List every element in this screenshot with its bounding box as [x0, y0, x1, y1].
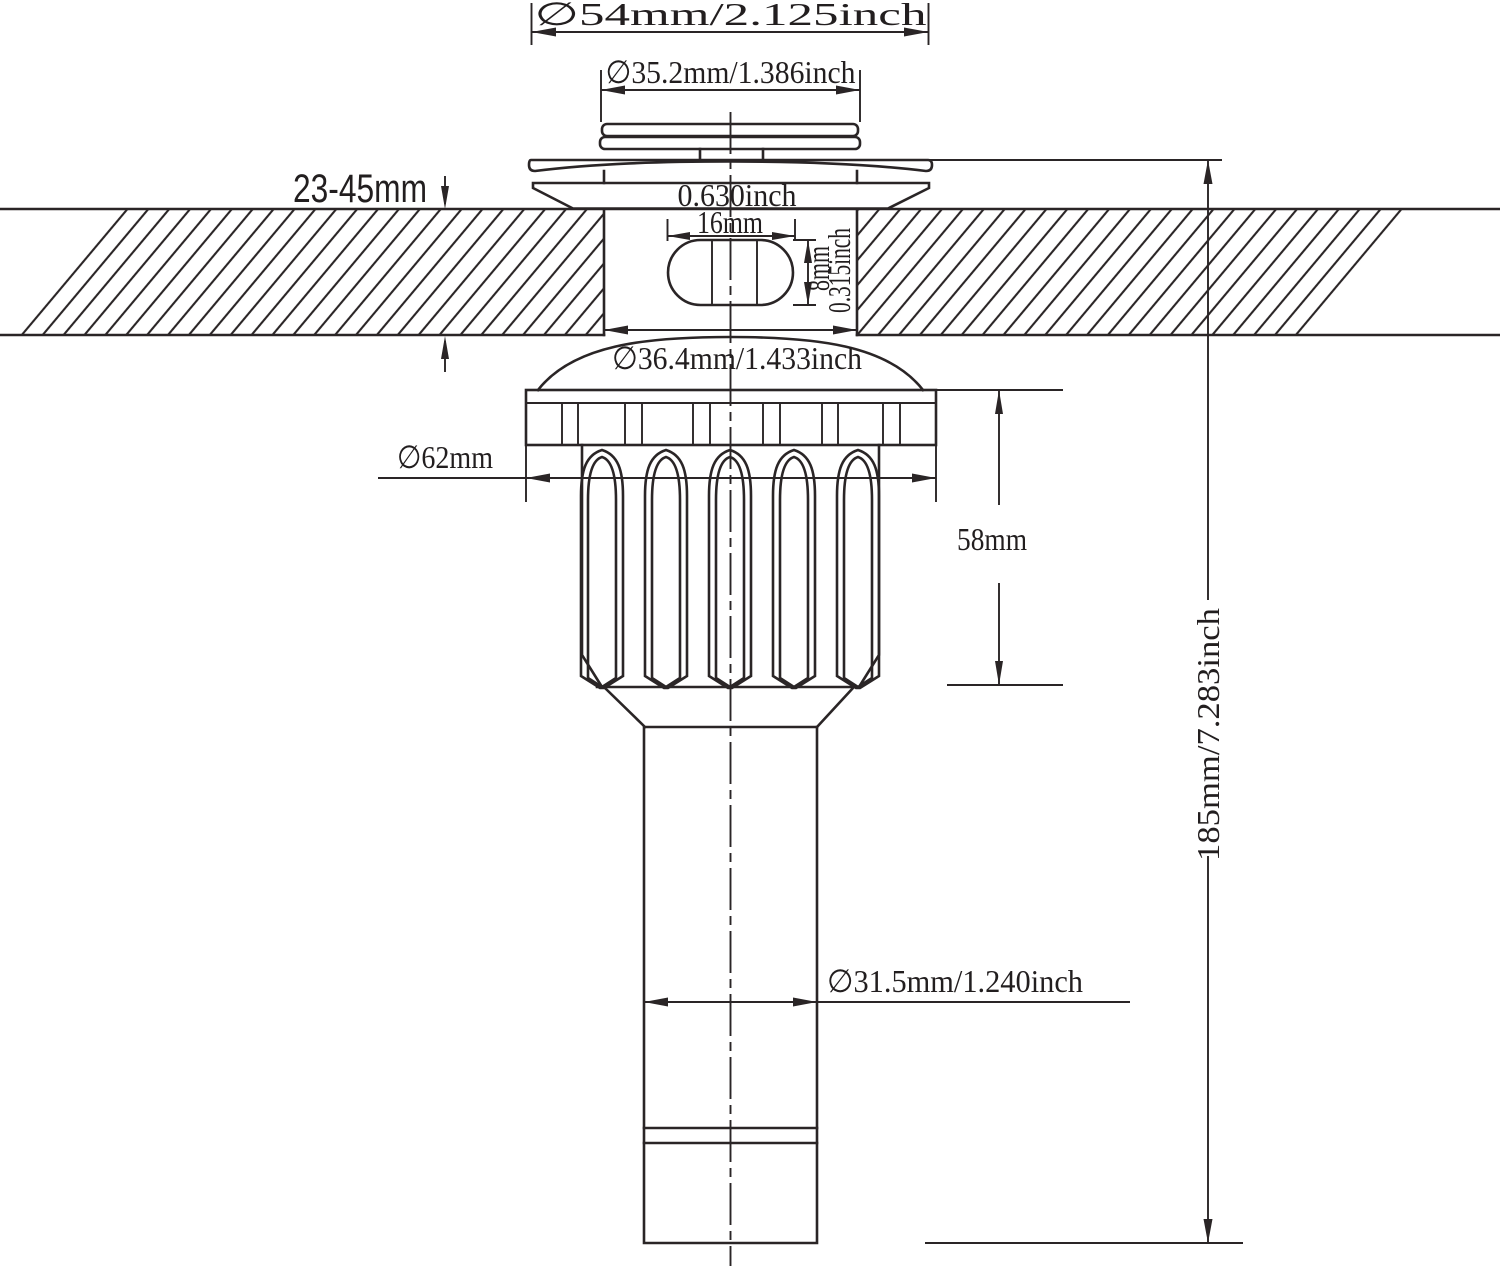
drain-dimension-drawing: ∅54mm/2.125inch ∅35.2mm/1.386inch 23-45m… [0, 0, 1500, 1268]
drain-dimension-drawing-page: ∅54mm/2.125inch ∅35.2mm/1.386inch 23-45m… [0, 0, 1500, 1268]
cone-transition [605, 688, 853, 727]
dim-cap-diameter: ∅35.2mm/1.386inch [606, 54, 856, 90]
dim-slot-height-inch: 0.315inch [821, 228, 857, 313]
countertop-hatch-right [857, 209, 1419, 335]
countertop-hatch-left [7, 209, 604, 335]
cap-stem [700, 149, 763, 160]
dim-tail-pipe-diameter: ∅31.5mm/1.240inch [827, 963, 1083, 999]
dim-body-diameter: ∅36.4mm/1.433inch [612, 340, 862, 376]
dim-lock-nut-diameter: ∅62mm [397, 439, 493, 475]
dim-overall-height: 185mm/7.283inch [1190, 608, 1226, 861]
dim-top-flange-diameter: ∅54mm/2.125inch [535, 0, 927, 32]
overflow-slot-flats [712, 241, 757, 304]
dim-slot-length-mm: 16mm [697, 204, 763, 240]
dim-lock-nut-height: 58mm [957, 521, 1027, 557]
dimensions: ∅54mm/2.125inch ∅35.2mm/1.386inch 23-45m… [293, 0, 1243, 1243]
dim-countertop-thickness: 23-45mm [293, 167, 427, 211]
